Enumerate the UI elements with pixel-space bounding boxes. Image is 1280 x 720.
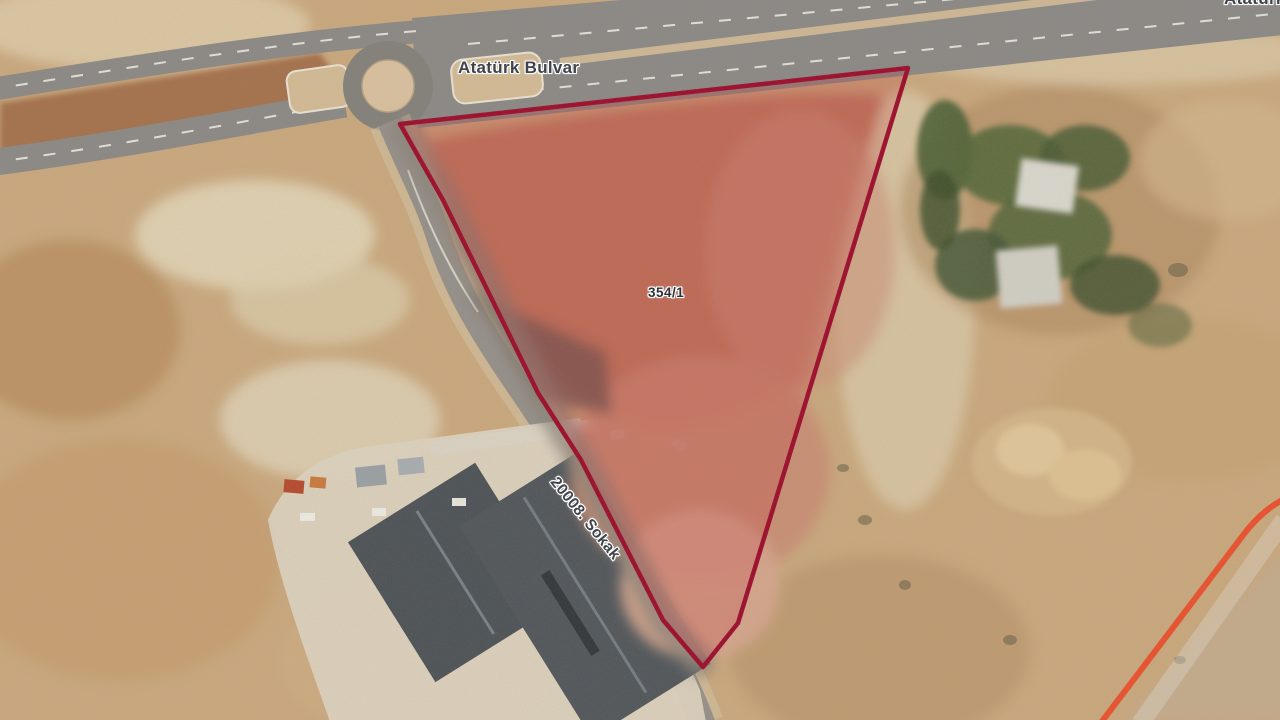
- map-viewport[interactable]: Atatürk Bulvar Atatürk 20008. Sokak 354/…: [0, 0, 1280, 720]
- satellite-grain-texture: [0, 0, 1280, 720]
- satellite-basemap: [0, 0, 1280, 720]
